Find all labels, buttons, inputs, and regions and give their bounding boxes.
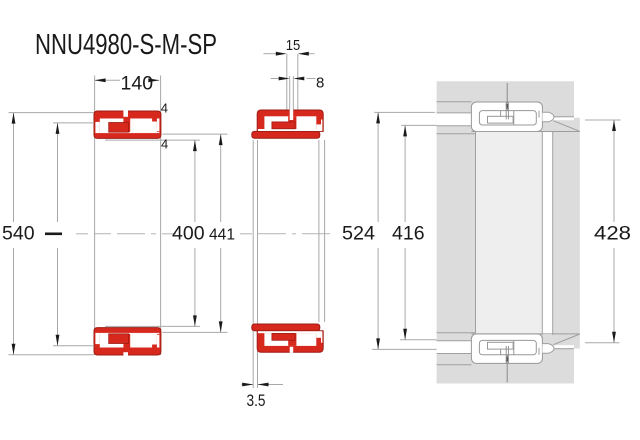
svg-text:140: 140: [121, 73, 154, 95]
svg-text:540: 540: [2, 223, 35, 245]
svg-text:400: 400: [172, 223, 205, 245]
svg-text:15: 15: [286, 37, 301, 54]
svg-text:8: 8: [316, 75, 324, 92]
svg-text:441: 441: [209, 227, 235, 244]
svg-text:416: 416: [392, 223, 425, 245]
svg-text:3.5: 3.5: [247, 391, 266, 410]
svg-text:524: 524: [342, 223, 375, 245]
svg-text:4: 4: [161, 101, 168, 116]
svg-text:428: 428: [594, 223, 631, 245]
svg-text:NNU4980-S-M-SP: NNU4980-S-M-SP: [35, 29, 217, 61]
svg-text:4: 4: [161, 137, 168, 152]
